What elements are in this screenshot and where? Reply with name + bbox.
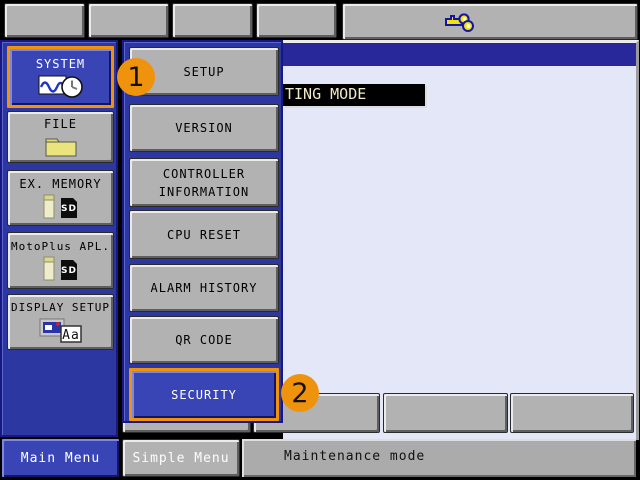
menu-item-controller-information[interactable]: CONTROLLER INFORMATION — [129, 158, 279, 207]
step-badge-2: 2 — [281, 374, 319, 412]
sidebar-item-label: FILE — [44, 117, 77, 131]
mode-banner: TING MODE — [283, 84, 425, 106]
menu-item-label: CONTROLLER INFORMATION — [144, 165, 264, 201]
menu-item-label: QR CODE — [175, 331, 233, 349]
menu-item-label: VERSION — [175, 119, 233, 137]
sidebar-item-label: DISPLAY SETUP — [11, 301, 110, 314]
sidebar-item-label: EX. MEMORY — [19, 177, 101, 191]
window-aa-icon: Aa — [39, 317, 83, 343]
menu-item-security[interactable]: SECURITY — [129, 368, 279, 421]
main-menu-sidebar: SYSTEM FILE EX. MEMORY — [0, 40, 118, 437]
chart-clock-icon — [38, 74, 84, 98]
top-tab-2[interactable] — [88, 3, 169, 38]
menu-item-cpu-reset[interactable]: CPU RESET — [129, 210, 279, 259]
status-icon-bar — [342, 3, 638, 40]
menu-item-label: SECURITY — [171, 386, 237, 404]
usb-sd-icon: SD — [41, 194, 81, 219]
usb-sd-icon: SD — [41, 256, 81, 281]
step-badge-1: 1 — [117, 58, 155, 96]
menu-item-qr-code[interactable]: QR CODE — [129, 316, 279, 364]
sidebar-item-label: SYSTEM — [36, 57, 85, 71]
menu-item-alarm-history[interactable]: ALARM HISTORY — [129, 264, 279, 312]
top-tab-4[interactable] — [256, 3, 337, 38]
folder-icon — [44, 134, 78, 158]
sidebar-item-ex-memory[interactable]: EX. MEMORY SD — [7, 170, 114, 226]
function-key-3[interactable] — [383, 393, 508, 433]
menu-item-label: SETUP — [183, 63, 224, 81]
menu-item-version[interactable]: VERSION — [129, 104, 279, 152]
system-submenu-panel: SETUP VERSION CONTROLLER INFORMATION CPU… — [122, 40, 283, 423]
sidebar-item-file[interactable]: FILE — [7, 111, 114, 163]
sidebar-item-display-setup[interactable]: DISPLAY SETUP Aa — [7, 294, 114, 350]
top-tab-1[interactable] — [4, 3, 85, 38]
menu-item-label: CPU RESET — [167, 226, 241, 244]
sidebar-item-system[interactable]: SYSTEM — [7, 46, 114, 108]
keys-icon — [443, 10, 475, 34]
sidebar-item-motoplus-apl[interactable]: MotoPlus APL. SD — [7, 232, 114, 289]
main-menu-button[interactable]: Main Menu — [2, 439, 119, 477]
status-bar: Maintenance mode — [242, 439, 636, 477]
simple-menu-button[interactable]: Simple Menu — [122, 439, 240, 477]
content-window: TING MODE — [283, 40, 639, 440]
content-title-band — [283, 43, 636, 66]
menu-item-label: ALARM HISTORY — [151, 279, 258, 297]
sidebar-item-label: MotoPlus APL. — [11, 240, 110, 253]
svg-text:SD: SD — [61, 204, 77, 214]
function-key-4[interactable] — [510, 393, 634, 433]
svg-text:SD: SD — [61, 266, 77, 276]
top-tab-3[interactable] — [172, 3, 253, 38]
svg-text:Aa: Aa — [62, 328, 80, 343]
